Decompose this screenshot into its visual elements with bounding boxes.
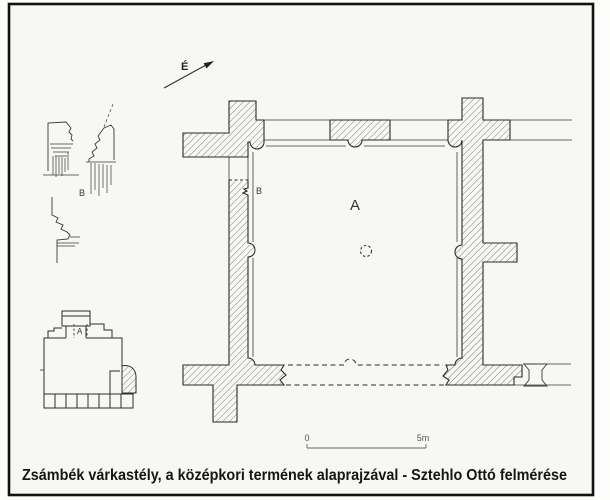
room-label: A xyxy=(350,197,360,214)
wall-moulding-marker-label: B xyxy=(256,186,262,196)
figure-caption: Zsámbék várkastély, a középkori termének… xyxy=(22,467,567,484)
north-label: É xyxy=(181,60,188,73)
scale-start-label: 0 xyxy=(304,433,309,443)
detail-marker-label: B xyxy=(79,188,85,198)
site-hall-label: A xyxy=(77,327,83,336)
scanned-figure-page: É B A xyxy=(0,0,610,500)
site-apse xyxy=(122,366,136,393)
scale-end-label: 5m xyxy=(417,433,430,443)
figure-drawing: É B A xyxy=(0,0,610,500)
